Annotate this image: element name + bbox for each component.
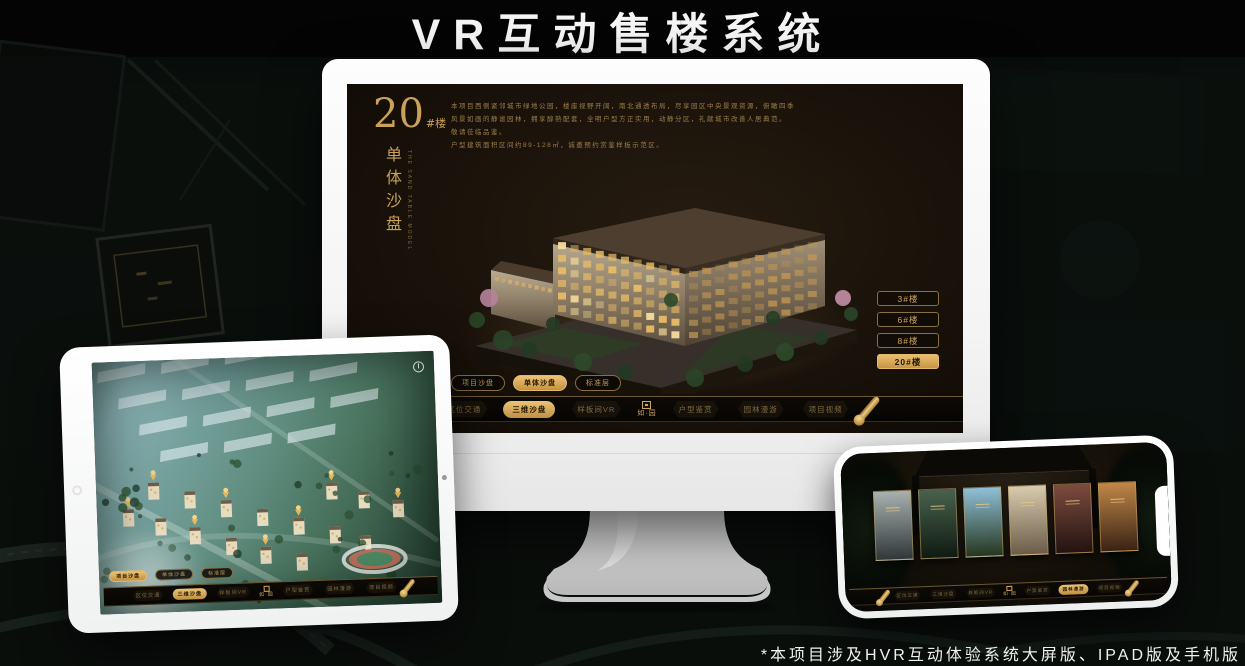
menu-item[interactable]: 样板间VR	[568, 401, 624, 418]
brand-logo-text: 如·园	[259, 592, 274, 598]
phone-device: 区位交通三维沙盘样板间VR如·园户型鉴赏园林漫游项目视频	[833, 435, 1179, 620]
panel-caption-marks	[1066, 500, 1080, 502]
brand-seal-icon	[263, 585, 269, 591]
menu-item[interactable]: 园林漫游	[735, 401, 787, 418]
menu-item[interactable]: 园林漫游	[322, 583, 357, 595]
floor-button[interactable]: 6#楼	[877, 312, 939, 327]
description-line: 敬请莅临品鉴。	[451, 126, 891, 139]
subtab[interactable]: 项目沙盘	[451, 375, 505, 391]
menu-item[interactable]: 区位交通	[892, 590, 922, 601]
block-unit: #楼	[426, 117, 446, 130]
monitor-stand	[517, 509, 797, 613]
building-3d-render	[433, 148, 879, 394]
scroll-ornament-icon[interactable]	[401, 578, 416, 595]
block-subtitle-vertical: 单体沙盘	[380, 146, 404, 238]
panel-caption-marks	[886, 507, 900, 509]
panel-caption-marks	[1021, 502, 1035, 504]
menu-item[interactable]: 项目视频	[364, 581, 399, 593]
tablet-camera-icon	[72, 485, 82, 495]
tablet-sensor-dot	[442, 475, 447, 480]
subtab[interactable]: 单体沙盘	[155, 568, 193, 580]
menu-item[interactable]: 样板间VR	[964, 587, 997, 598]
menu-item[interactable]: 项目视频	[1094, 582, 1124, 593]
menu-item[interactable]: 三维沙盘	[172, 588, 207, 600]
building-description: 本项目西侧紧邻城市绿地公园，楼座视野开阔，南北通透布局，尽享园区中央景观资源，俯…	[451, 100, 891, 152]
subtab[interactable]: 项目沙盘	[109, 570, 147, 582]
description-line: 户型建筑面积区间约89-128㎡，诚邀预约赏鉴样板示范区。	[451, 139, 891, 152]
scroll-ornament-icon[interactable]	[877, 588, 891, 604]
subtab[interactable]: 标准层	[575, 375, 621, 391]
panel-caption-marks	[931, 506, 945, 508]
description-line: 本项目西侧紧邻城市绿地公园，楼座视野开阔，南北通透布局，尽享园区中央景观资源，俯…	[451, 100, 891, 113]
menu-item[interactable]: 园林漫游	[1058, 583, 1088, 594]
brand-logo-text: 如·园	[1003, 592, 1017, 597]
floor-button-group: 3#楼6#楼8#楼20#楼	[877, 291, 939, 369]
phone-screen: 区位交通三维沙盘样板间VR如·园户型鉴赏园林漫游项目视频	[840, 442, 1172, 612]
floor-button[interactable]: 8#楼	[877, 333, 939, 348]
page-title: VR互动售楼系统	[0, 0, 1245, 62]
menu-item[interactable]: 户型鉴赏	[280, 584, 315, 596]
phone-notch	[1155, 486, 1171, 556]
brand-logo: 如·园	[637, 401, 656, 417]
menu-item[interactable]: 样板间VR	[214, 586, 252, 598]
menu-item[interactable]: 三维沙盘	[928, 588, 958, 599]
menu-item[interactable]: 户型鉴赏	[670, 401, 722, 418]
monitor-subtabs: 项目沙盘单体沙盘标准层	[451, 375, 621, 391]
block-number: 20	[373, 91, 424, 137]
tablet-device: 项目沙盘单体沙盘标准层 区位交通三维沙盘样板间VR如·园户型鉴赏园林漫游项目视频	[59, 334, 459, 633]
subtab[interactable]: 单体沙盘	[513, 375, 567, 391]
poster-canvas: VR互动售楼系统 20#楼 单体沙盘 THE SAND TABLE MODEL …	[0, 0, 1245, 666]
block-title: 20#楼	[373, 92, 446, 136]
menu-item[interactable]: 区位交通	[130, 589, 165, 601]
brand-seal-icon	[642, 401, 651, 409]
brand-logo: 如·园	[259, 585, 274, 598]
floor-button[interactable]: 20#楼	[877, 354, 939, 369]
block-subtitle-english: THE SAND TABLE MODEL	[406, 150, 412, 251]
menu-item[interactable]: 户型鉴赏	[1022, 585, 1052, 596]
panel-caption-marks	[1111, 499, 1125, 501]
brand-seal-icon	[1007, 586, 1013, 591]
gallery-panel-misty-courtyard[interactable]	[873, 490, 914, 561]
gallery-panel-sky-garden-path[interactable]	[963, 486, 1004, 557]
project-footnote: *本项目涉及HVR互动体验系统大屏版、IPAD版及手机版	[761, 641, 1241, 665]
scroll-ornament-icon[interactable]	[1126, 579, 1140, 595]
panel-caption-marks	[976, 504, 990, 506]
gallery-panel-building-facade[interactable]	[1008, 484, 1049, 555]
menu-item[interactable]: 三维沙盘	[503, 401, 555, 418]
scroll-ornament-icon[interactable]	[856, 395, 881, 422]
floor-button[interactable]: 3#楼	[877, 291, 939, 306]
brand-logo-text: 如·园	[637, 410, 656, 417]
brand-logo: 如·园	[1003, 586, 1017, 597]
gallery-panel-gallery-red[interactable]	[1053, 483, 1094, 554]
gallery-panel-warm-shelves[interactable]	[1098, 481, 1139, 552]
description-line: 风景如画的静谧园林，拥享醇熟配套，全明户型方正实用，动静分区，礼献城市改善人居典…	[451, 113, 891, 126]
vr-gallery-panels	[873, 481, 1138, 561]
tablet-screen: 项目沙盘单体沙盘标准层 区位交通三维沙盘样板间VR如·园户型鉴赏园林漫游项目视频	[92, 351, 443, 615]
gallery-panel-garden-interior[interactable]	[918, 488, 959, 559]
menu-item[interactable]: 项目视频	[800, 401, 852, 418]
subtab[interactable]: 标准层	[201, 567, 233, 579]
